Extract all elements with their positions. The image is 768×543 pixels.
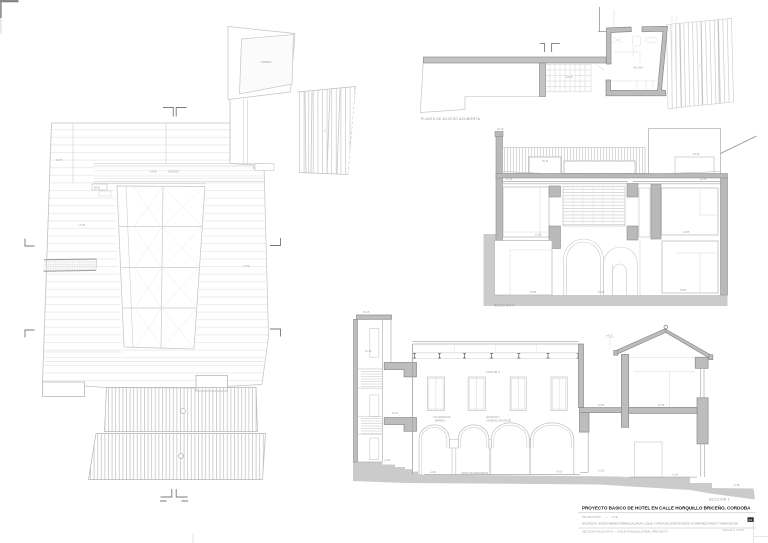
svg-text:15.15: 15.15 <box>658 404 665 407</box>
svg-text:+1.08: +1.08 <box>672 474 679 477</box>
svg-text:15.15: 15.15 <box>363 311 370 314</box>
svg-text:03: 03 <box>749 518 753 522</box>
svg-text:15.15: 15.15 <box>693 153 700 156</box>
svg-text:12.15: 12.15 <box>700 178 707 181</box>
svg-text:12.85: 12.85 <box>683 231 690 234</box>
svg-text:SECCION CALLE HOYO — CALLE HOR: SECCION CALLE HOYO — CALLE HORQUILLO REA… <box>582 530 669 534</box>
svg-text:12.85: 12.85 <box>598 404 605 407</box>
svg-text:12.85: 12.85 <box>535 234 542 237</box>
svg-text:+1.30: +1.30 <box>384 459 391 462</box>
svg-text:SECCIÓN 1: SECCIÓN 1 <box>709 497 730 502</box>
svg-text:WC H/M: WC H/M <box>633 67 642 70</box>
svg-text:15.15: 15.15 <box>542 160 549 163</box>
svg-text:BAJA: BAJA <box>94 187 100 190</box>
svg-text:LITERAS: LITERAS <box>261 60 272 64</box>
svg-text:+0.00: +0.00 <box>430 471 437 474</box>
svg-text:-7.74: -7.74 <box>243 264 250 268</box>
svg-text:CAMA DE H.: CAMA DE H. <box>486 371 501 374</box>
svg-text:PROYECTO BASICO DE HOTEL EN CA: PROYECTO BASICO DE HOTEL EN CALLE HORQUI… <box>582 504 751 510</box>
svg-text:N.P.T.: N.P.T. <box>56 158 63 162</box>
svg-text:LIMITE DE MEDIANERIA: LIMITE DE MEDIANERIA <box>461 472 489 475</box>
svg-text:+9.46: +9.46 <box>150 170 157 174</box>
svg-text:SECCIÓN 4: SECCIÓN 4 <box>494 303 514 308</box>
svg-text:PROMOTOR — UTE: PROMOTOR — UTE <box>582 515 618 519</box>
svg-text:+1.18: +1.18 <box>733 484 740 487</box>
svg-text:+0.00: +0.00 <box>598 470 605 473</box>
svg-text:ARQUITECTO ANTONIO JIMENEZ T: ARQUITECTO ANTONIO JIMENEZ TORRECILLAS, … <box>582 522 738 526</box>
svg-text:+4.15: +4.15 <box>606 335 613 338</box>
svg-text:+0.00: +0.00 <box>556 471 563 474</box>
svg-text:+7.56: +7.56 <box>78 223 86 227</box>
svg-text:19.85: 19.85 <box>680 289 687 292</box>
svg-text:19.85: 19.85 <box>530 291 537 294</box>
svg-text:19.85: 19.85 <box>598 291 605 294</box>
svg-text:ESCALA 1/100: ESCALA 1/100 <box>723 528 744 532</box>
svg-text:ACCESO: ACCESO <box>168 170 179 174</box>
svg-text:12.15: 12.15 <box>392 412 399 415</box>
svg-text:12.15: 12.15 <box>506 178 513 181</box>
svg-text:MARMOL: MARMOL <box>435 420 446 423</box>
svg-text:13.15: 13.15 <box>566 76 573 79</box>
svg-text:YESERIAS DE MOLDE: YESERIAS DE MOLDE <box>486 420 512 423</box>
svg-text:15.15: 15.15 <box>497 128 504 131</box>
svg-text:PLANTA DE ACCESO ACUBIERTA: PLANTA DE ACCESO ACUBIERTA <box>421 117 481 121</box>
svg-text:12.15: 12.15 <box>365 350 372 353</box>
